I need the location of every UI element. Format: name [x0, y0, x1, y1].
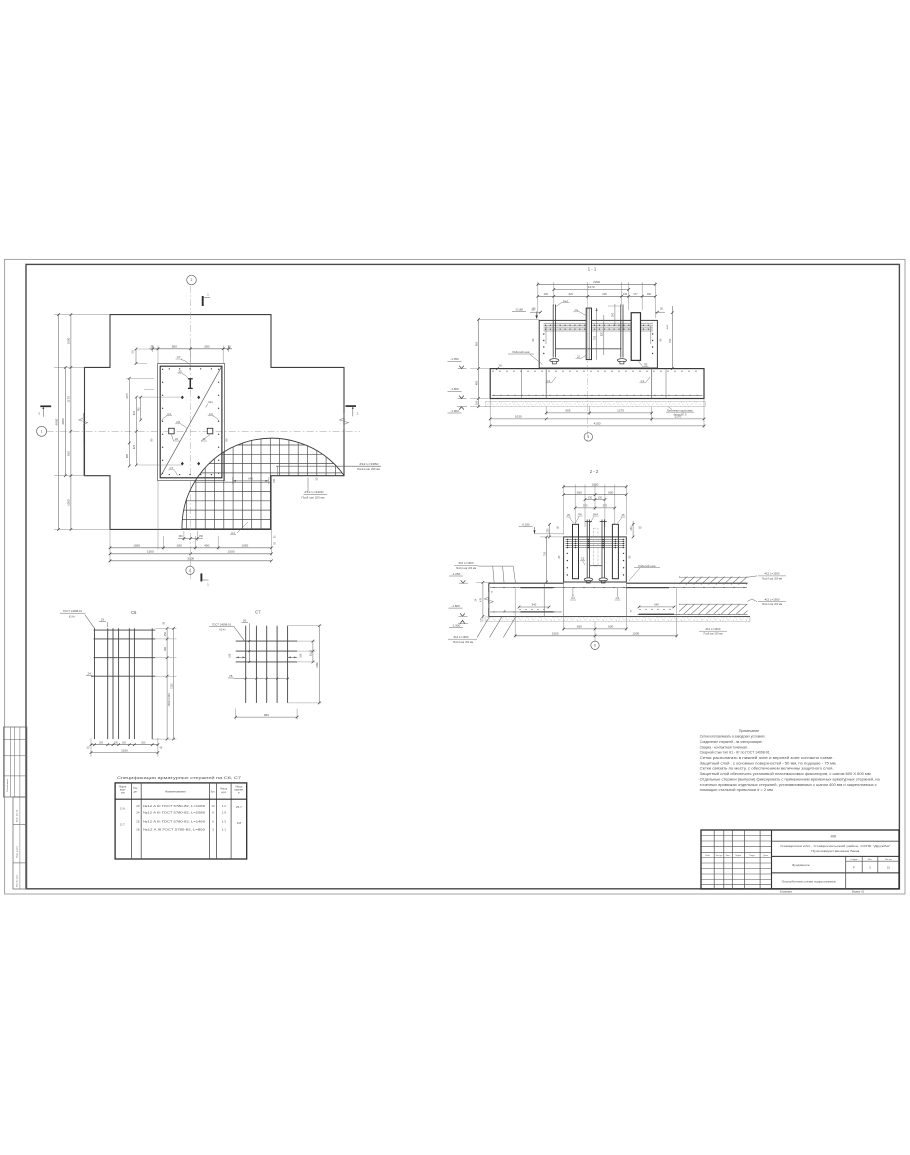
svg-text:П5: П5 [644, 363, 648, 367]
svg-text:150: 150 [199, 535, 204, 538]
svg-text:290: 290 [612, 312, 615, 317]
svg-text:25: 25 [136, 820, 140, 824]
svg-text:1.3: 1.3 [222, 820, 226, 824]
svg-text:3: 3 [587, 435, 589, 439]
svg-text:#12 L=4400: #12 L=4400 [706, 627, 721, 631]
svg-text:Производственная база: Производственная база [811, 849, 860, 853]
svg-text:6000: 6000 [54, 418, 58, 425]
svg-text:Сварка - контактная точечная.: Сварка - контактная точечная. [700, 745, 748, 749]
svg-text:150хп=1500: 150хп=1500 [168, 693, 171, 707]
svg-text:580: 580 [172, 345, 177, 349]
svg-text:905: 905 [565, 409, 570, 413]
svg-text:25.7: 25.7 [236, 805, 242, 809]
svg-text:помощью стальной проволоки d =: помощью стальной проволоки d = 2 мм [700, 788, 774, 792]
svg-text:1: 1 [41, 430, 43, 434]
svg-text:25: 25 [622, 513, 625, 517]
svg-text:Копировал: Копировал [780, 891, 793, 894]
svg-text:25: 25 [178, 369, 182, 373]
svg-text:1050: 1050 [133, 543, 140, 547]
svg-text:Защитный слой : с основных пов: Защитный слой : с основных поверхностей … [700, 761, 837, 765]
svg-text:#12 L=1950: #12 L=1950 [360, 462, 379, 466]
svg-text:150: 150 [588, 496, 593, 499]
svg-text:дет.: дет. [134, 792, 139, 794]
svg-text:370: 370 [583, 504, 588, 508]
svg-text:370: 370 [603, 504, 608, 508]
svg-text:1.1: 1.1 [222, 828, 226, 832]
svg-text:Формат А1: Формат А1 [852, 891, 865, 894]
svg-text:Сварной стык тип К1 - Кт по ГО: Сварной стык тип К1 - Кт по ГОСТ 14098-9… [700, 751, 771, 755]
svg-text:630: 630 [608, 490, 613, 494]
svg-text:475: 475 [480, 597, 483, 602]
svg-text:2: 2 [191, 278, 193, 282]
svg-text:-1.800: -1.800 [451, 604, 460, 608]
svg-text:1.2: 1.2 [222, 804, 226, 808]
svg-text:изделия,: изделия, [234, 790, 244, 792]
svg-text:100: 100 [122, 741, 127, 744]
svg-text:Взам. инв. №: Взам. инв. № [16, 809, 19, 822]
svg-text:Инв. № подл.: Инв. № подл. [16, 874, 19, 887]
svg-text:ГОСТ 14098-91: ГОСТ 14098-91 [212, 622, 231, 626]
svg-text:1160: 1160 [121, 748, 128, 752]
svg-text:290: 290 [630, 526, 633, 531]
svg-text:С7: С7 [255, 609, 261, 614]
svg-text:2х100: 2х100 [311, 649, 313, 656]
svg-text:Марка: Марка [119, 787, 127, 789]
svg-text:Спецификация арматурных стерж: Спецификация арматурных стержней на С6, … [117, 775, 242, 780]
svg-text:ГОСТ 14098-91: ГОСТ 14098-91 [63, 609, 82, 613]
svg-text:Примечание: Примечание [739, 729, 759, 733]
svg-text:С-7.: С-7. [120, 823, 126, 827]
svg-text:625: 625 [133, 410, 136, 415]
svg-text:К1-Кт: К1-Кт [69, 615, 76, 619]
svg-text:Защитный слой обеспечить устан: Защитный слой обеспечить установкой плас… [700, 772, 872, 776]
svg-text:180: 180 [229, 653, 232, 658]
svg-text:640: 640 [654, 603, 659, 607]
svg-text:50: 50 [150, 344, 154, 348]
svg-text:25: 25 [229, 674, 233, 678]
svg-text:Подп. и дата: Подп. и дата [17, 845, 19, 858]
svg-text:Кол.уч: Кол.уч [716, 855, 723, 857]
svg-text:-1.900: -1.900 [452, 624, 461, 628]
svg-text:26: 26 [136, 828, 140, 832]
svg-text:Соединение стержней - на элект: Соединение стержней - на электросварке. [700, 740, 763, 744]
svg-text:Сетки связать по месту, с обес: Сетки связать по месту, с обеспечением в… [700, 767, 834, 771]
svg-text:1170: 1170 [67, 396, 71, 403]
svg-text:4х25: 4х25 [667, 324, 669, 330]
svg-text:Сетки изготавливать в заводски: Сетки изготавливать в заводских условиях… [700, 735, 766, 739]
svg-text:625: 625 [133, 444, 136, 449]
svg-text:230: 230 [546, 528, 549, 533]
svg-text:С1: С1 [641, 379, 645, 383]
svg-text:Оь: Оь [578, 512, 582, 516]
svg-text:Р: Р [853, 865, 855, 869]
svg-text:22: 22 [577, 354, 581, 358]
svg-text:-1.800: -1.800 [450, 387, 459, 391]
svg-text:кг: кг [238, 793, 240, 795]
svg-text:Пос8 шаг 200 мм: Пос8 шаг 200 мм [302, 495, 325, 499]
svg-text:4000: 4000 [61, 418, 65, 425]
svg-text:Дата: Дата [763, 855, 769, 857]
svg-text:1270: 1270 [588, 285, 595, 289]
svg-text:С7: С7 [169, 466, 173, 470]
svg-text:Лист: Лист [868, 859, 873, 861]
svg-text:960: 960 [264, 713, 269, 717]
svg-text:1000: 1000 [67, 499, 71, 506]
svg-text:4100: 4100 [594, 422, 601, 426]
svg-text:750: 750 [593, 335, 596, 340]
svg-text:изде-: изде- [120, 790, 126, 792]
svg-text:580: 580 [204, 345, 209, 349]
svg-text:630: 630 [608, 625, 613, 629]
svg-text:150: 150 [273, 478, 276, 483]
svg-text:985: 985 [126, 453, 129, 458]
svg-text:250: 250 [164, 632, 167, 637]
svg-text:Масса: Масса [236, 787, 244, 789]
svg-text:150: 150 [598, 496, 603, 499]
svg-text:1050: 1050 [241, 543, 248, 547]
svg-text:25: 25 [567, 513, 570, 517]
svg-text:1 - 1: 1 - 1 [588, 266, 597, 271]
svg-text:1560: 1560 [592, 483, 599, 487]
svg-text:-1.050: -1.050 [452, 572, 461, 576]
svg-text:Пос14 шаг 200 мм: Пос14 шаг 200 мм [456, 567, 477, 570]
svg-text:625: 625 [602, 292, 607, 296]
svg-text:630: 630 [577, 490, 582, 494]
svg-text:640: 640 [532, 603, 537, 607]
svg-text:№12 А III ГОСТ 5780-82, L=146: №12 А III ГОСТ 5780-82, L=1460 [143, 820, 206, 824]
svg-text:Наименование: Наименование [165, 789, 186, 793]
svg-text:С7: С7 [177, 355, 181, 359]
svg-text:Отдельные стержни (выпуски) фи: Отдельные стержни (выпуски) фиксировать … [700, 777, 880, 781]
svg-text:Рабочий шов: Рабочий шов [638, 564, 656, 568]
svg-text:820: 820 [601, 331, 604, 336]
svg-text:100: 100 [114, 741, 119, 744]
svg-text:22: 22 [175, 437, 179, 441]
svg-text:795: 795 [138, 407, 141, 412]
svg-text:Масса: Масса [220, 789, 228, 791]
svg-text:200: 200 [141, 741, 146, 744]
svg-text:-0.180: -0.180 [515, 308, 523, 312]
svg-text:15: 15 [887, 865, 891, 869]
svg-text:200: 200 [99, 741, 104, 744]
svg-text:точечных привязках отдельных с: точечных привязках отдельных стержней, у… [700, 783, 877, 787]
svg-text:1500: 1500 [552, 632, 559, 636]
svg-text:#12 L=1950: #12 L=1950 [765, 572, 780, 576]
svg-text:ед,кг: ед,кг [221, 792, 226, 794]
svg-text:2 - 2: 2 - 2 [590, 469, 599, 474]
svg-text:630: 630 [177, 543, 182, 547]
svg-text:480: 480 [474, 380, 478, 385]
svg-text:450: 450 [204, 543, 209, 547]
svg-text:6: 6 [594, 643, 596, 647]
svg-text:9.8: 9.8 [237, 821, 242, 825]
svg-text:Аь1: Аь1 [563, 299, 568, 303]
svg-text:#12 L=1950: #12 L=1950 [454, 635, 469, 639]
svg-text:С4: С4 [209, 412, 213, 416]
svg-text:900: 900 [474, 341, 478, 346]
svg-text:Поз.: Поз. [133, 788, 138, 790]
svg-text:-1.900: -1.900 [450, 409, 459, 413]
svg-text:К1-Кт: К1-Кт [219, 627, 226, 631]
svg-text:Рабочий шов: Рабочий шов [512, 350, 530, 354]
svg-text:1500: 1500 [228, 550, 235, 554]
svg-text:Фундаменты: Фундаменты [792, 863, 810, 867]
svg-text:830: 830 [67, 451, 71, 456]
svg-text:23: 23 [101, 617, 105, 621]
svg-text:Сетки располагать в нижней зон: Сетки располагать в нижней зоне и верхне… [700, 756, 834, 760]
svg-text:Согласовано: Согласовано [7, 778, 9, 792]
svg-text:23: 23 [136, 804, 140, 808]
svg-text:2170: 2170 [674, 415, 681, 419]
svg-text:-0.180: -0.180 [522, 523, 530, 527]
svg-text:750: 750 [542, 551, 546, 556]
svg-text:1460: 1460 [316, 662, 319, 668]
svg-text:С-6.: С-6. [120, 807, 126, 811]
svg-text:Опалубочная схема подколонника: Опалубочная схема подколонника [782, 879, 837, 883]
svg-text:630: 630 [577, 625, 582, 629]
svg-text:2110: 2110 [170, 683, 173, 689]
svg-text:Самарская обл., Ставропольский: Самарская обл., Ставропольский район, СХ… [780, 844, 890, 848]
svg-text:Подп.: Подп. [749, 855, 755, 857]
svg-text:150: 150 [178, 535, 183, 538]
svg-text:2200: 2200 [593, 280, 600, 284]
svg-text:Пос14 шаг 200 мм: Пос14 шаг 200 мм [453, 641, 474, 644]
svg-text:№1: №1 [208, 400, 213, 404]
svg-text:№12 А III ГОСТ 5780-82, L=106: №12 А III ГОСТ 5780-82, L=1060 [143, 804, 206, 808]
svg-text:С4: С4 [167, 412, 171, 416]
svg-text:1.9: 1.9 [222, 811, 226, 815]
svg-text:1030: 1030 [515, 415, 522, 419]
svg-text:С1: С1 [547, 379, 551, 383]
svg-text:100: 100 [474, 400, 478, 405]
svg-text:С1: С1 [231, 531, 235, 535]
svg-text:Пос14 шаг 200 мм: Пос14 шаг 200 мм [762, 603, 783, 606]
svg-text:№12 А III ГОСТ 5780-82, L=258: №12 А III ГОСТ 5780-82, L=2580 [143, 811, 206, 815]
svg-text:160: 160 [647, 292, 652, 296]
svg-text:-КЖ: -КЖ [830, 834, 837, 838]
svg-text:Аь1: Аь1 [593, 512, 598, 516]
svg-text:Стадия: Стадия [850, 859, 858, 861]
svg-text:Изм.: Изм. [705, 855, 710, 857]
svg-text:3000: 3000 [187, 556, 194, 560]
svg-text:50: 50 [228, 344, 232, 348]
svg-text:24: 24 [88, 672, 92, 676]
svg-text:Пос14 шаг 200 мм: Пос14 шаг 200 мм [762, 577, 783, 580]
svg-text:360: 360 [164, 646, 167, 651]
svg-text:1000: 1000 [67, 337, 71, 344]
svg-text:11: 11 [188, 568, 191, 572]
svg-text:160: 160 [544, 292, 549, 296]
svg-text:625: 625 [569, 292, 574, 296]
svg-text:№док: №док [735, 854, 741, 857]
svg-text:1500: 1500 [632, 632, 639, 636]
svg-text:#12 L=1950: #12 L=1950 [765, 597, 780, 601]
svg-text:Пос14 шаг 200 мм: Пос14 шаг 200 мм [357, 467, 380, 471]
svg-text:26: 26 [243, 619, 247, 623]
svg-text:1500: 1500 [147, 550, 154, 554]
svg-text:180: 180 [299, 653, 302, 658]
svg-text:С6: С6 [176, 420, 180, 424]
svg-text:640: 640 [248, 476, 253, 480]
svg-text:#12 L=1950: #12 L=1950 [459, 561, 474, 565]
svg-text:-1.050: -1.050 [450, 357, 459, 361]
svg-text:Лист: Лист [726, 855, 731, 857]
svg-text:750: 750 [668, 338, 672, 343]
svg-text:С6: С6 [131, 610, 137, 615]
svg-text:177: 177 [633, 292, 638, 296]
svg-text:№12 А III ГОСТ 5780-82, L=860: №12 А III ГОСТ 5780-82, L=860 [143, 828, 206, 832]
svg-text:С5: С5 [581, 556, 585, 560]
svg-text:24: 24 [136, 811, 140, 815]
svg-text:Пос8 шаг 200 мм: Пос8 шаг 200 мм [704, 633, 723, 636]
svg-text:160: 160 [623, 292, 628, 296]
svg-text:Кол.: Кол. [211, 791, 216, 793]
svg-text:13: 13 [211, 804, 215, 808]
svg-text:Оь: Оь [575, 308, 579, 312]
svg-text:Листов: Листов [885, 859, 893, 861]
svg-text:1275: 1275 [617, 409, 624, 413]
svg-text:#12 L=4400: #12 L=4400 [305, 490, 324, 494]
svg-text:3175: 3175 [126, 393, 129, 399]
